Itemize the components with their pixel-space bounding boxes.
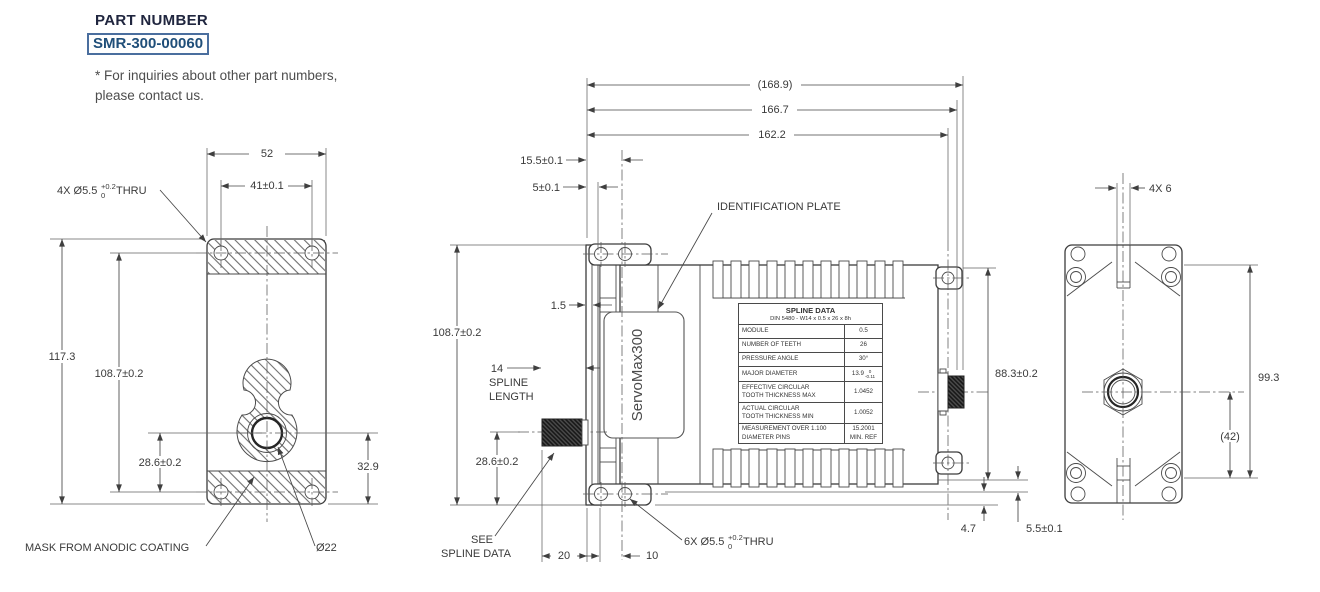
id-plate-label: IDENTIFICATION PLATE [717, 201, 841, 213]
spline-length-word2: LENGTH [489, 391, 534, 403]
row-label-line1: EFFECTIVE CIRCULAR [742, 384, 844, 392]
spline-data-table: SPLINE DATA DIN 5480 - W14 x 0.5 x 26 x … [738, 303, 883, 444]
dim-shaft-height: 28.6±0.2 [476, 456, 519, 468]
dim-ear-offset: 5.5±0.1 [1026, 523, 1063, 535]
dim-rear-view-height: 99.3 [1258, 372, 1279, 384]
row-label-line1: MEASUREMENT OVER 1.100 [742, 425, 844, 433]
row-value: 26 [860, 341, 867, 349]
rear-view: 4X 6 99.3 (42) [1065, 173, 1279, 520]
note-line-1: * For inquiries about other part numbers… [95, 66, 337, 86]
row-label-line2: TOOTH THICKNESS MIN [742, 413, 844, 421]
row-value: 30° [859, 355, 868, 363]
row-value-sub: -0.11 [865, 374, 875, 379]
row-label-line1: ACTUAL CIRCULAR [742, 405, 844, 413]
side-holes-callout: 6X Ø5.5 [684, 536, 724, 548]
drawing-canvas: 52 41±0.1 117.3 108.7±0.2 28.6±0.2 32.9 … [0, 0, 1320, 592]
dim-side-height: 108.7±0.2 [433, 327, 482, 339]
table-row: MODULE 0.5 [739, 325, 882, 339]
dim-total-length: (168.9) [758, 79, 793, 91]
front-holes-callout-suffix: THRU [116, 185, 147, 197]
table-row: EFFECTIVE CIRCULAR TOOTH THICKNESS MAX 1… [739, 382, 882, 403]
spline-table-title: SPLINE DATA [739, 304, 882, 315]
dim-front-holes-height: 108.7±0.2 [95, 368, 144, 380]
front-holes-tol-sub: 0 [101, 191, 105, 200]
part-number-title: PART NUMBER [95, 12, 208, 29]
dim-connector-offset: (42) [1220, 431, 1240, 443]
side-holes-tol-sub: 0 [728, 542, 732, 551]
front-holes-tol-sup: +0.2 [101, 182, 116, 191]
row-label-line2: TOOTH THICKNESS MAX [742, 392, 844, 400]
table-row: PRESSURE ANGLE 30° [739, 353, 882, 367]
dim-flange-offset: 5±0.1 [533, 182, 560, 194]
dim-plate-thickness: 1.5 [551, 300, 566, 312]
row-value: 1.0452 [854, 388, 873, 396]
dim-front-bottom-offset: 32.9 [357, 461, 378, 473]
front-holes-callout: 4X Ø5.5 [57, 185, 97, 197]
dim-20: 20 [558, 550, 570, 562]
dim-foot-offset: 4.7 [961, 523, 976, 535]
dim-front-width: 52 [261, 148, 273, 160]
row-value: 0.5 [859, 327, 868, 335]
dim-length-3: 162.2 [758, 129, 786, 141]
row-value-line1: 15.2001 [852, 425, 874, 433]
dim-length-2: 166.7 [761, 104, 789, 116]
dim-front-height: 117.3 [49, 351, 76, 363]
front-view: 52 41±0.1 117.3 108.7±0.2 28.6±0.2 32.9 … [25, 146, 387, 554]
table-row: NUMBER OF TEETH 26 [739, 339, 882, 353]
dim-10: 10 [646, 550, 658, 562]
dim-front-center-height: 28.6±0.2 [139, 457, 182, 469]
dim-front-holes-width: 41±0.1 [250, 180, 284, 192]
dim-spline-length: 14 [491, 363, 503, 375]
spline-length-word1: SPLINE [489, 377, 528, 389]
mask-label: MASK FROM ANODIC COATING [25, 542, 189, 554]
connector [938, 369, 964, 415]
table-row: MAJOR DIAMETER 13.9 0-0.11 [739, 367, 882, 382]
part-number-chip[interactable]: SMR-300-00060 [87, 33, 209, 55]
spline-table-subtitle: DIN 5480 - W14 x 0.5 x 26 x 8h [739, 315, 882, 325]
dim-front-section: 15.5±0.1 [520, 155, 563, 167]
table-row: MEASUREMENT OVER 1.100 DIAMETER PINS 15.… [739, 424, 882, 443]
row-label: PRESSURE ANGLE [742, 355, 844, 363]
see-spline-word2: SPLINE DATA [441, 548, 512, 560]
dim-rear-height: 88.3±0.2 [995, 368, 1038, 380]
row-label: MODULE [742, 327, 844, 335]
row-label: NUMBER OF TEETH [742, 341, 844, 349]
row-value: 1.0052 [854, 409, 873, 417]
part-number-note: * For inquiries about other part numbers… [95, 66, 337, 105]
see-spline-word1: SEE [471, 534, 493, 546]
row-label: MAJOR DIAMETER [742, 370, 844, 378]
row-value: 13.9 [852, 370, 864, 378]
dim-slot-width: 4X 6 [1149, 183, 1172, 195]
row-label-line2: DIAMETER PINS [742, 434, 844, 442]
side-holes-callout-suffix: THRU [743, 536, 774, 548]
brand-label: ServoMax300 [629, 329, 646, 422]
table-row: ACTUAL CIRCULAR TOOTH THICKNESS MIN 1.00… [739, 403, 882, 424]
row-value-line2: MIN. REF [850, 434, 877, 442]
note-line-2: please contact us. [95, 86, 337, 106]
bore-label: Ø22 [316, 542, 337, 554]
side-holes-tol-sup: +0.2 [728, 533, 743, 542]
spline-shaft [542, 419, 582, 446]
